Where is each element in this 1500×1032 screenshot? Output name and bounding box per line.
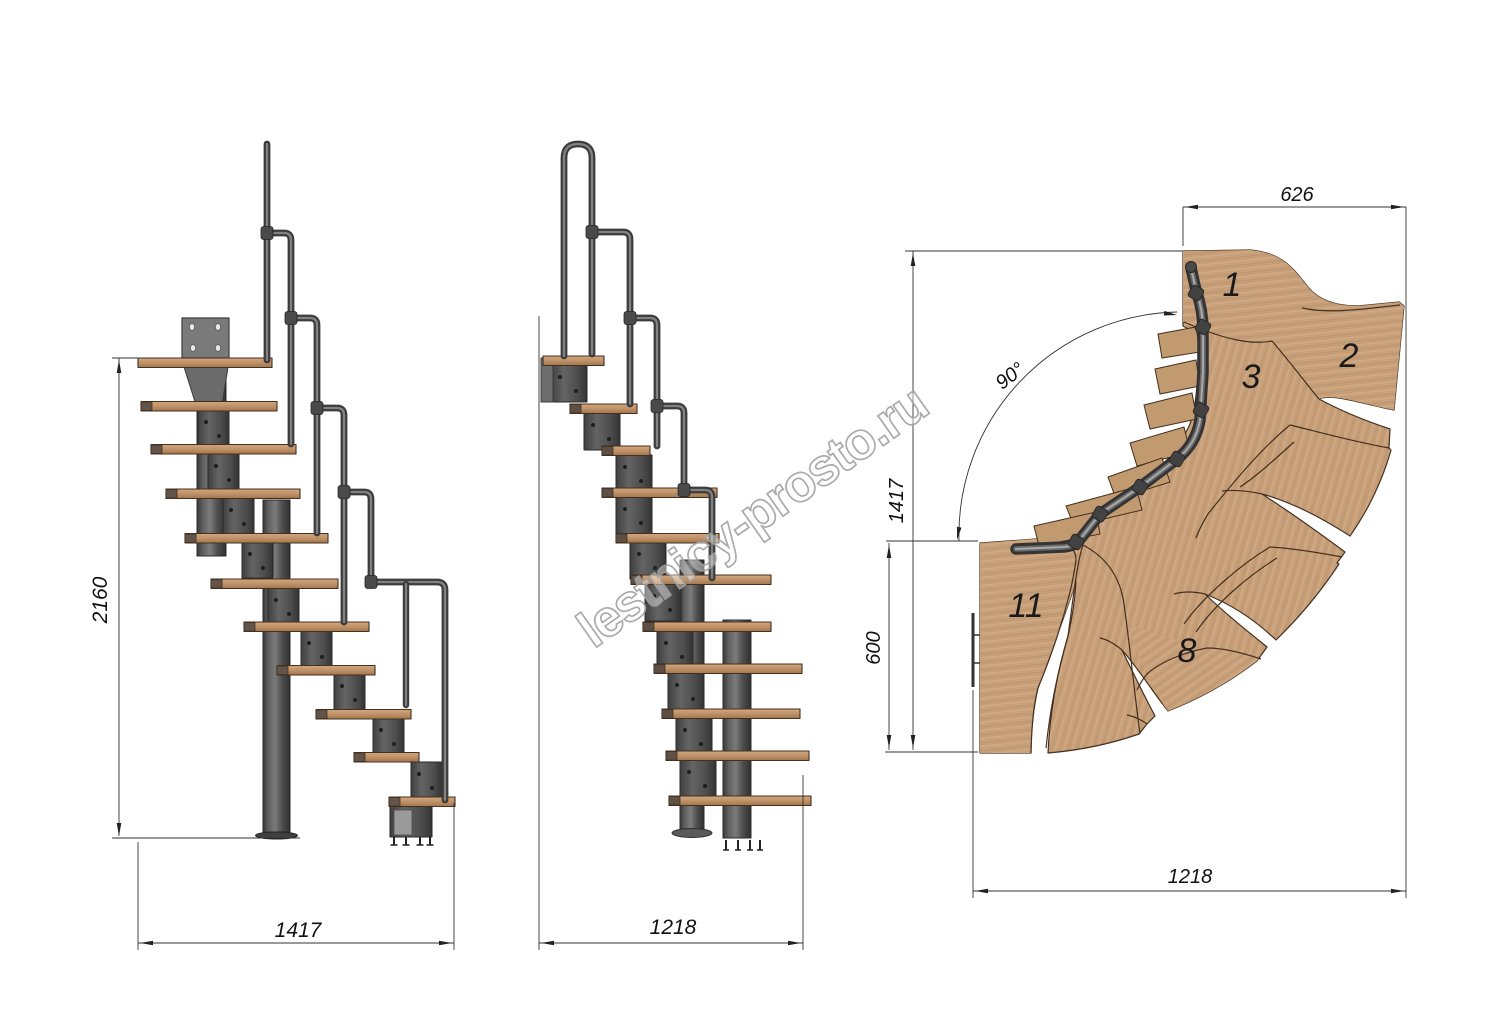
svg-text:1218: 1218 — [1168, 866, 1213, 888]
svg-text:3: 3 — [1242, 358, 1261, 396]
svg-text:1417: 1417 — [886, 478, 908, 523]
svg-text:600: 600 — [863, 631, 885, 664]
svg-text:2160: 2160 — [89, 576, 112, 624]
svg-text:8: 8 — [1178, 632, 1197, 670]
svg-text:1218: 1218 — [650, 916, 697, 939]
svg-text:626: 626 — [1280, 184, 1314, 206]
svg-text:1417: 1417 — [275, 919, 323, 942]
svg-text:2: 2 — [1339, 337, 1359, 375]
svg-text:11: 11 — [1008, 587, 1043, 625]
svg-text:1: 1 — [1223, 266, 1242, 304]
